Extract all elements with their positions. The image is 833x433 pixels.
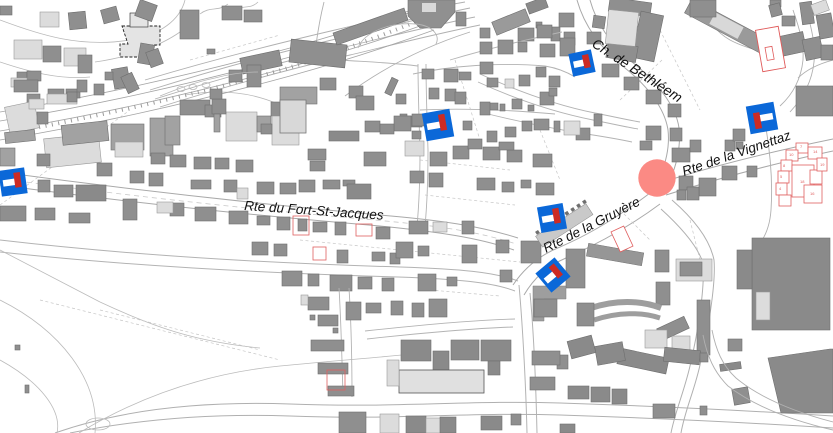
svg-text:18: 18 [800,179,805,184]
svg-text:14: 14 [813,149,818,154]
svg-text:10: 10 [789,152,794,157]
svg-text:16: 16 [810,191,815,196]
svg-text:19: 19 [820,162,825,167]
